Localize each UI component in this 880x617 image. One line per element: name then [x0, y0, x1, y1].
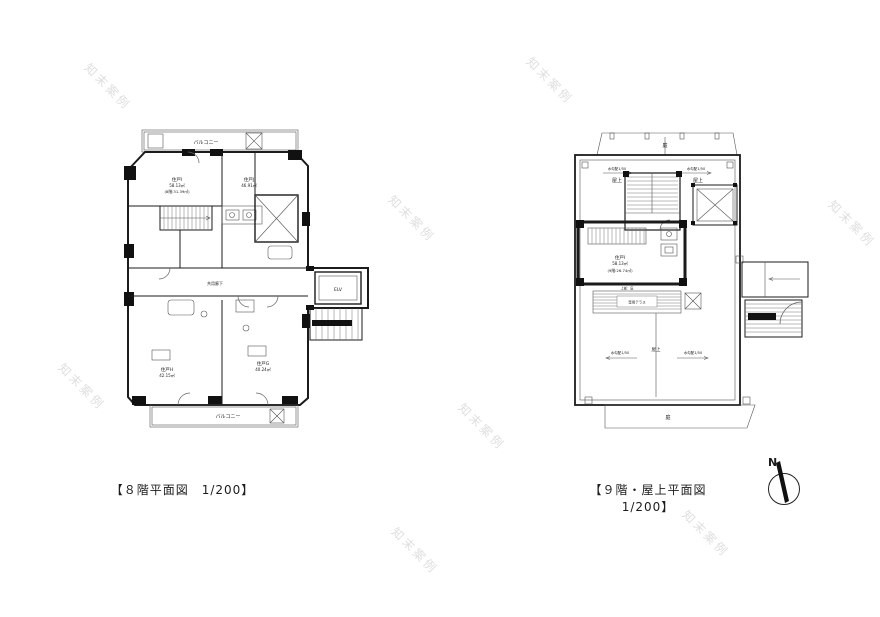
unit-i-area: 58.13㎡	[169, 182, 184, 188]
unit-i-name: 住戸I	[172, 176, 182, 183]
north-compass: N	[755, 450, 815, 512]
floor9-ext-stair	[745, 300, 802, 337]
floor9-parapet-inner	[580, 160, 735, 400]
floor8-caption: 【８階平面図 1/200】	[100, 481, 265, 498]
slope-top-right: 水勾配1/50	[687, 166, 705, 171]
terrace-label: 専用テラス	[628, 300, 646, 305]
unit-h-name: 住戸H	[161, 366, 173, 373]
roof-top-right: 屋上	[693, 177, 703, 184]
watermark: 知末案例	[55, 359, 109, 413]
floor9-caption: 【９階・屋上平面図 1/200】	[565, 481, 731, 515]
floor8-kitchen	[222, 206, 262, 224]
unit-j-area: 46.91㎡	[241, 182, 256, 188]
floor8-pillars	[124, 149, 314, 405]
floor9-skylight	[691, 183, 737, 225]
roof-top-left: 屋上	[612, 177, 622, 184]
slope-top-left: 水勾配1/50	[608, 166, 626, 171]
floor8-partitions	[128, 152, 255, 405]
unit-i9-area: 58.13㎡	[612, 260, 627, 266]
watermark: 知末案例	[825, 196, 879, 250]
floor9-roof-top: 水勾配1/50 屋上 水勾配1/50 屋上	[603, 166, 711, 184]
floor9-garden-top: 庭	[597, 133, 737, 155]
floor8-balcony-bottom: バルコニー	[150, 405, 298, 427]
floor8-void-square	[255, 195, 298, 259]
floor8-balcony-top: バルコニー	[142, 130, 298, 152]
unit-g-name: 住戸G	[257, 360, 270, 367]
slope-bottom-right: 水勾配1/50	[684, 350, 702, 355]
garden-bottom-label: 庭	[665, 414, 670, 421]
floor9-outline	[575, 155, 740, 405]
compass-needle	[776, 461, 789, 503]
roof-center: 屋上	[652, 346, 661, 353]
compass-n-label: N	[768, 456, 777, 469]
corridor-label: 共用廊下	[207, 280, 223, 286]
canopy-label: 上部：庇	[621, 286, 635, 291]
floor8-bathrooms	[152, 300, 266, 360]
slope-bottom-left: 水勾配1/50	[611, 350, 629, 355]
drawing-sheet: 知末案例 知末案例 知末案例 知末案例 知末案例 知末案例 知末案例 知末案例 …	[0, 0, 880, 617]
balcony-bottom-label: バルコニー	[216, 414, 241, 420]
watermark: 知末案例	[81, 59, 135, 113]
watermark: 知末案例	[385, 191, 439, 245]
unit-i-note: (8階:31.39㎡)	[164, 189, 190, 194]
watermark: 知末案例	[523, 53, 577, 107]
unit-i9-name: 住戸I	[615, 254, 625, 261]
balcony-top-label: バルコニー	[194, 140, 219, 146]
watermark: 知末案例	[388, 523, 442, 577]
floor9-terrace: 上部：庇 専用テラス	[593, 286, 701, 314]
unit-g-area: 40.24㎡	[255, 366, 270, 372]
floor9-roof-lower: 屋上 水勾配1/50 水勾配1/50	[606, 313, 708, 397]
elevator-label: ELV	[334, 287, 343, 293]
floor9-right-wing	[736, 256, 808, 297]
garden-top-label: 庭	[662, 142, 667, 149]
unit-j-name: 住戸J	[244, 176, 254, 183]
unit-h-area: 42.15㎡	[159, 372, 174, 378]
floor8-ext-stair	[310, 308, 362, 340]
floor8-plan: バルコニー 共用廊下	[118, 118, 378, 436]
unit-i9-note: (9階:26.74㎡)	[607, 268, 633, 273]
floor9-garden-bottom: 庭	[605, 405, 755, 428]
floor9-plan: 庭 水勾配1/50 屋上 水勾配1/50 屋上	[565, 125, 820, 435]
floor8-corridor: 共用廊下	[128, 268, 308, 296]
watermark: 知末案例	[455, 399, 509, 453]
floor8-stair	[160, 206, 212, 230]
floor8-elevator: ELV	[315, 272, 361, 304]
